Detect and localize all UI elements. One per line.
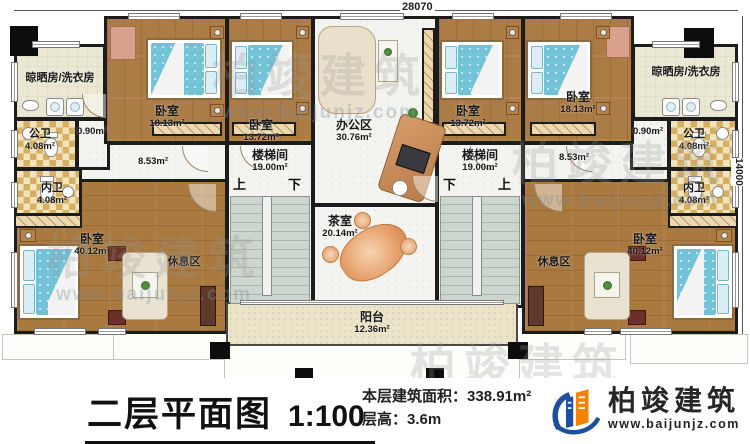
room-name: 公卫 bbox=[25, 128, 55, 141]
window bbox=[560, 13, 612, 20]
washing-machine bbox=[66, 98, 84, 116]
room-area: 18.13m² bbox=[149, 118, 184, 129]
label-bedroom-13-left: 卧室 13.72m² bbox=[243, 118, 278, 143]
tea-pouf bbox=[400, 238, 417, 255]
room-name: 楼梯间 bbox=[462, 148, 498, 162]
label-laundry-left: 晾晒房/洗衣房 bbox=[25, 72, 94, 85]
window bbox=[32, 41, 80, 48]
label-balcony: 阳台 12.36m² bbox=[354, 310, 389, 335]
bed bbox=[230, 40, 294, 100]
wardrobe-strip-left bbox=[14, 214, 82, 228]
dresser bbox=[110, 26, 136, 60]
label-stairwell-right: 楼梯间 19.00m² bbox=[462, 148, 498, 173]
window bbox=[452, 13, 494, 20]
room-name: 楼梯间 bbox=[252, 148, 288, 162]
nightstand bbox=[596, 102, 610, 115]
label-tea-room: 茶室 20.14m² bbox=[322, 214, 357, 239]
office-sofa bbox=[318, 26, 376, 114]
washing-machine bbox=[46, 98, 64, 116]
washing-machine bbox=[682, 98, 700, 116]
room-name: 内卫 bbox=[37, 182, 67, 195]
nightstand bbox=[210, 104, 224, 117]
room-area: 18.13m² bbox=[560, 104, 595, 115]
label-public-bath-right: 公卫 4.08m² bbox=[679, 128, 709, 152]
bed bbox=[146, 38, 222, 100]
label-corridor-left: 8.53m² bbox=[138, 156, 168, 167]
label-bedroom-13-right: 卧室 13.72m² bbox=[450, 104, 485, 129]
label-private-bath-left: 内卫 4.08m² bbox=[37, 182, 67, 206]
room-name: 阳台 bbox=[354, 310, 389, 324]
room-name: 晾晒房/洗衣房 bbox=[651, 66, 720, 79]
brand-logo-icon bbox=[548, 382, 602, 436]
room-name: 卧室 bbox=[627, 232, 662, 246]
room-name: 内卫 bbox=[679, 182, 709, 195]
office-table bbox=[378, 40, 398, 82]
label-office: 办公区 30.76m² bbox=[336, 118, 372, 143]
room-area: 8.53m² bbox=[138, 156, 168, 167]
window bbox=[11, 182, 18, 208]
floor-height-line: 层高：3.6m bbox=[362, 408, 531, 431]
nightstand bbox=[296, 102, 309, 115]
footer-caption: 二层平面图 1:100 本层建筑面积：338.91m² 层高：3.6m 柏竣建筑… bbox=[0, 378, 750, 444]
room-name: 晾晒房/洗衣房 bbox=[25, 72, 94, 85]
plant bbox=[603, 281, 612, 290]
room-name: 卧室 bbox=[243, 118, 278, 132]
stairs-up-label: 上 bbox=[498, 174, 511, 193]
room-area: 13.72m² bbox=[243, 132, 278, 143]
room-area: 19.00m² bbox=[462, 162, 498, 173]
brand-text: 柏竣建筑 www.baijunjz.com bbox=[608, 387, 740, 431]
sink bbox=[716, 127, 729, 140]
pillar-balcony-right bbox=[508, 342, 528, 359]
plan-title: 二层平面图 bbox=[87, 386, 272, 437]
window bbox=[732, 62, 739, 102]
window bbox=[620, 328, 672, 335]
room-area: 19.00m² bbox=[252, 162, 288, 173]
room-name: 卧室 bbox=[74, 232, 109, 246]
bed bbox=[18, 244, 80, 320]
room-name: 茶室 bbox=[322, 214, 357, 228]
brand-block: 柏竣建筑 www.baijunjz.com bbox=[548, 382, 740, 436]
window bbox=[11, 252, 18, 308]
window bbox=[128, 13, 180, 20]
window bbox=[584, 328, 612, 335]
room-area: 4.08m² bbox=[25, 141, 55, 152]
washing-machine bbox=[662, 98, 680, 116]
stairs-down-label: 下 bbox=[443, 174, 456, 193]
side-table bbox=[628, 310, 646, 325]
window bbox=[34, 328, 86, 335]
zone-name: 休息区 bbox=[538, 256, 571, 269]
floor-area-line: 本层建筑面积：338.91m² bbox=[362, 385, 531, 408]
laundry-sink bbox=[710, 100, 727, 111]
zone-name: 休息区 bbox=[168, 256, 201, 269]
nightstand bbox=[506, 102, 519, 115]
window bbox=[11, 130, 18, 158]
plan-stats: 本层建筑面积：338.91m² 层高：3.6m bbox=[362, 385, 531, 432]
brand-name: 柏竣建筑 bbox=[608, 387, 740, 415]
label-bedroom-18-right: 卧室 18.13m² bbox=[560, 90, 595, 115]
floor-area-value: 338.91m² bbox=[467, 388, 531, 405]
label-lobby-left: 0.90m² bbox=[77, 126, 107, 137]
terrace-left-outline bbox=[2, 334, 114, 360]
plan-scale: 1:100 bbox=[288, 400, 365, 434]
laundry-sink bbox=[22, 100, 39, 111]
nightstand bbox=[716, 229, 732, 242]
nightstand bbox=[296, 26, 309, 39]
room-area: 0.90m² bbox=[77, 126, 107, 137]
tv-cabinet bbox=[528, 286, 544, 326]
room-area: 30.76m² bbox=[336, 132, 372, 143]
tea-pouf bbox=[322, 246, 339, 263]
label-lobby-right: 0.90m² bbox=[633, 126, 663, 137]
nightstand bbox=[210, 26, 224, 39]
label-corridor-right: 8.53m² bbox=[559, 152, 589, 163]
label-bedroom-18-left: 卧室 18.13m² bbox=[149, 104, 184, 129]
wardrobe-strip-right bbox=[668, 214, 738, 228]
nightstand bbox=[506, 26, 519, 39]
office-cabinet bbox=[422, 28, 435, 124]
label-bedroom-40-right: 卧室 40.12m² bbox=[627, 232, 662, 257]
room-area: 4.08m² bbox=[37, 195, 67, 206]
label-stairwell-left: 楼梯间 19.00m² bbox=[252, 148, 288, 173]
stairs-left-rail bbox=[262, 196, 272, 296]
terrace-right-outline bbox=[630, 334, 748, 364]
room-area: 4.08m² bbox=[679, 195, 709, 206]
room-area: 0.90m² bbox=[633, 126, 663, 137]
wardrobe bbox=[530, 122, 596, 136]
plan-title-block: 二层平面图 1:100 bbox=[85, 386, 375, 444]
floorplan-canvas: 晾晒房/洗衣房 卧室 18.13m² 卧室 13.72m² 办公区 30.76m… bbox=[0, 0, 750, 444]
bed bbox=[440, 40, 504, 100]
tv-cabinet bbox=[200, 286, 216, 326]
dimension-top-value: 28070 bbox=[400, 1, 435, 13]
bed bbox=[672, 244, 734, 320]
room-name: 公卫 bbox=[679, 128, 709, 141]
sink bbox=[712, 186, 724, 198]
floor-height-label: 层高： bbox=[362, 411, 407, 428]
label-bedroom-40-left: 卧室 40.12m² bbox=[74, 232, 109, 257]
room-area: 40.12m² bbox=[627, 246, 662, 257]
dimension-right-value: 14000 bbox=[731, 158, 746, 186]
dimension-line-top bbox=[14, 10, 738, 11]
room-name: 卧室 bbox=[560, 90, 595, 104]
window bbox=[652, 41, 700, 48]
plant bbox=[408, 108, 418, 118]
pillar-balcony-left bbox=[210, 342, 230, 359]
window bbox=[98, 328, 126, 335]
plant bbox=[141, 281, 150, 290]
room-name: 卧室 bbox=[450, 104, 485, 118]
room-area: 12.36m² bbox=[354, 324, 389, 335]
room-name: 办公区 bbox=[336, 118, 372, 132]
nightstand bbox=[20, 229, 36, 242]
stairs-down-label: 下 bbox=[288, 174, 301, 193]
office-chair bbox=[392, 180, 408, 196]
plant bbox=[384, 48, 392, 56]
room-area: 4.08m² bbox=[679, 141, 709, 152]
window bbox=[340, 13, 404, 20]
label-public-bath-left: 公卫 4.08m² bbox=[25, 128, 55, 152]
window bbox=[240, 13, 282, 20]
window bbox=[732, 252, 739, 308]
label-private-bath-right: 内卫 4.08m² bbox=[679, 182, 709, 206]
window bbox=[732, 130, 739, 158]
window bbox=[11, 62, 18, 102]
room-name: 卧室 bbox=[149, 104, 184, 118]
room-area: 20.14m² bbox=[322, 228, 357, 239]
stairs-right-rail bbox=[472, 196, 482, 296]
balcony-sliding-window bbox=[240, 300, 504, 305]
label-rest-zone-right: 休息区 bbox=[538, 256, 571, 269]
room-area: 13.72m² bbox=[450, 118, 485, 129]
room-area: 40.12m² bbox=[74, 246, 109, 257]
floor-area-label: 本层建筑面积： bbox=[362, 388, 467, 405]
stairs-up-label: 上 bbox=[233, 174, 246, 193]
label-rest-zone-left: 休息区 bbox=[168, 256, 201, 269]
floor-height-value: 3.6m bbox=[407, 411, 441, 428]
room-area: 8.53m² bbox=[559, 152, 589, 163]
label-laundry-right: 晾晒房/洗衣房 bbox=[651, 66, 720, 79]
brand-url: www.baijunjz.com bbox=[608, 417, 740, 431]
nightstand bbox=[596, 26, 610, 39]
